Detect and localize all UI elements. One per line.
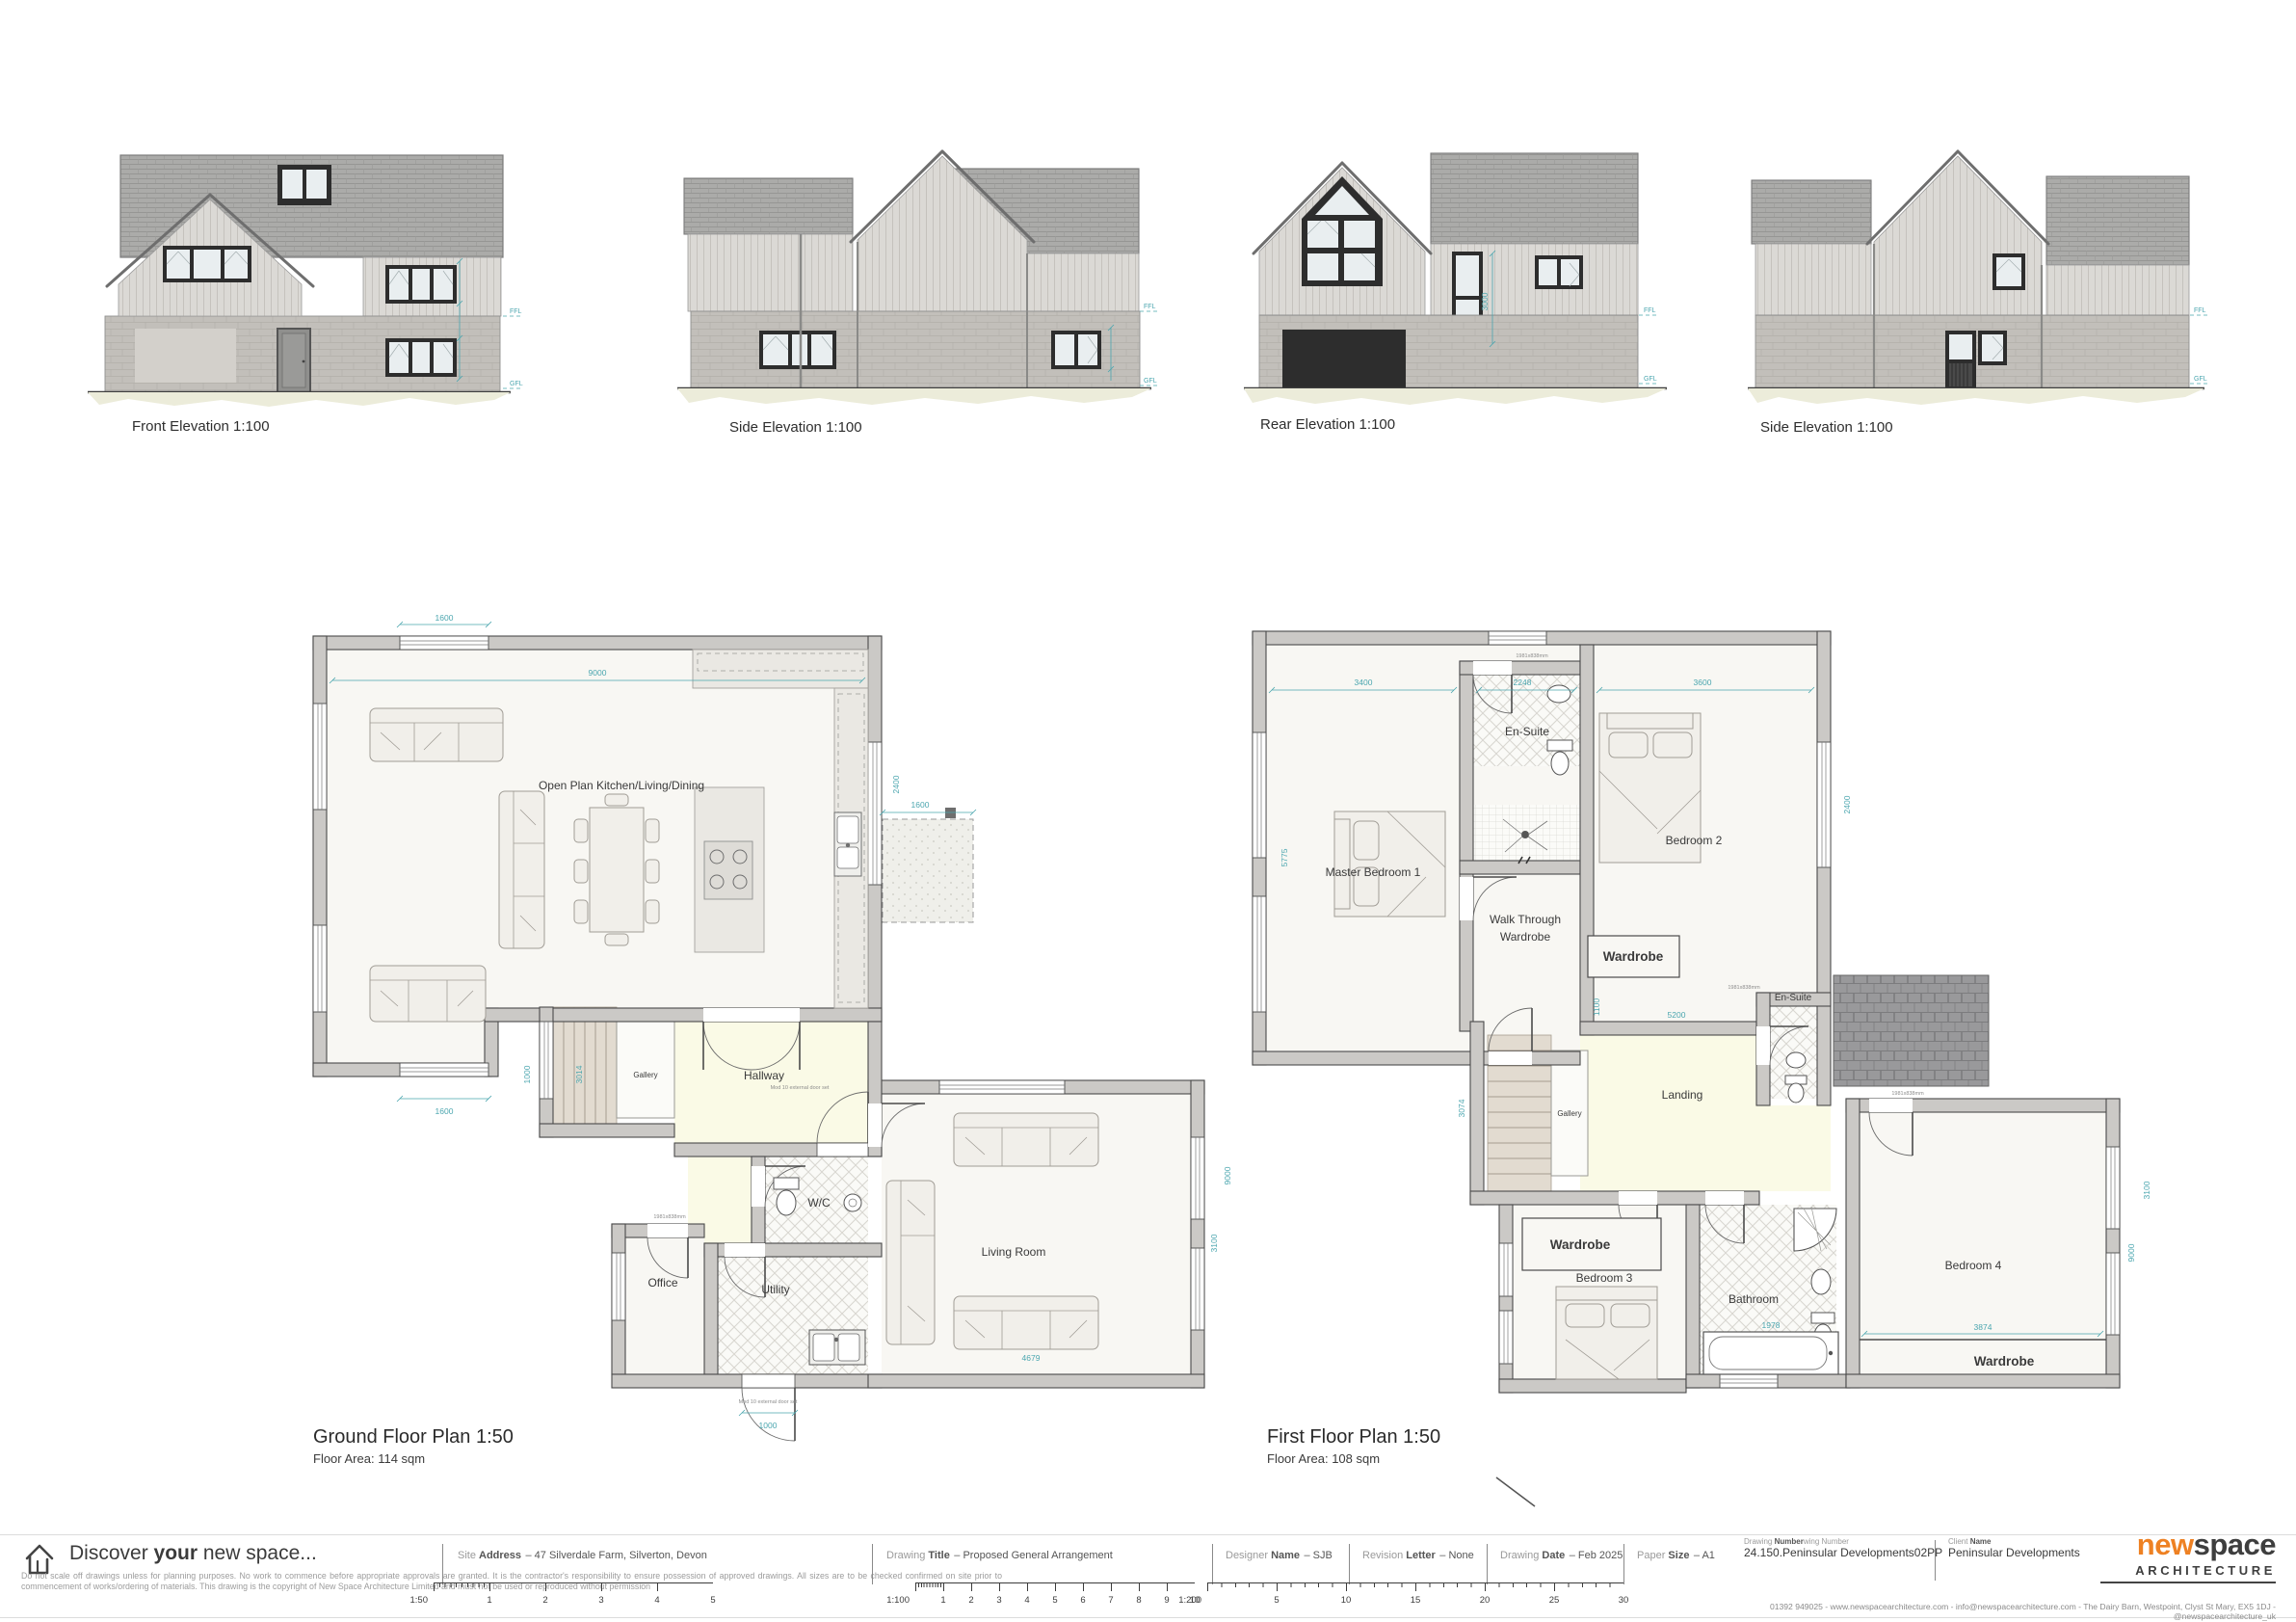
ground-window-right <box>1051 331 1101 369</box>
ground-line <box>677 388 1151 405</box>
field-value: – SJB <box>1305 1550 1333 1561</box>
upper-window-right <box>1535 255 1583 289</box>
gable-window <box>1993 253 2025 290</box>
first-floor-plan-drawing: Gallery <box>1233 578 2158 1446</box>
tag-utility-door: Mod 10 external door set <box>739 1399 798 1405</box>
field-label-bold: Number <box>1775 1537 1804 1546</box>
sofa <box>370 966 486 1022</box>
flat-roof-tiles <box>1834 975 1989 1086</box>
scale-tick: 25 <box>1549 1595 1560 1606</box>
gfl-label: GFL <box>1144 378 1157 385</box>
side-elevation-2-label: Side Elevation 1:100 <box>1760 419 1893 436</box>
patio <box>883 808 973 922</box>
upper-window-right <box>385 265 457 304</box>
left-roof <box>1752 180 1871 315</box>
left-roof <box>684 178 853 311</box>
scale-tick: 5 <box>1274 1595 1279 1606</box>
ffl-label: FFL <box>1644 307 1656 314</box>
scale-tick: 1 <box>487 1595 491 1606</box>
scale-tick: 3 <box>598 1595 603 1606</box>
field-designer: Designer Name – SJB <box>1226 1546 1333 1563</box>
ground-floor-area: Floor Area: 114 sqm <box>313 1451 425 1466</box>
scale-tick: 30 <box>1619 1595 1629 1606</box>
sofa <box>886 1181 935 1344</box>
utility-external-door <box>742 1374 795 1441</box>
left-cladding <box>1755 244 1871 315</box>
dim-landing: 5200 <box>1668 1010 1686 1020</box>
dim-width: 9000 <box>589 668 607 678</box>
field-label: Drawing <box>1500 1550 1542 1561</box>
field-label: Paper <box>1637 1550 1668 1561</box>
ground-floor-plan-drawing: Gallery <box>289 578 1233 1446</box>
ground-window-left <box>759 331 836 369</box>
scale-tick: 2 <box>968 1595 973 1606</box>
field-label-bold: Letter <box>1406 1550 1436 1561</box>
drawing-sheet: FFL GFL Front Elevation 1:100 <box>0 0 2296 1622</box>
sofa <box>954 1113 1098 1166</box>
scale-tick: 1 <box>940 1595 945 1606</box>
room-label-bath: Bathroom <box>1729 1292 1779 1306</box>
dim-bed4: 3874 <box>1974 1322 1993 1332</box>
tagline-bold: your <box>154 1542 198 1564</box>
room-label-bed4: Bedroom 4 <box>1945 1259 2002 1272</box>
field-drawing-number: Drawing Numberwing Number 24.150.Peninsu… <box>1744 1537 1942 1559</box>
tag-ensuite2-door: 1981x838mm <box>1728 985 1760 991</box>
scale-bar-1-50: 1:50 1 2 3 4 5 <box>434 1582 713 1591</box>
utility-sink <box>809 1330 865 1365</box>
bath <box>1703 1332 1838 1374</box>
field-value: – Feb 2025 <box>1570 1550 1623 1561</box>
scale-bar-1-200: 1:200 5 10 15 20 25 30 <box>1207 1582 1623 1591</box>
field-label-bold: Size <box>1668 1550 1689 1561</box>
dormer-window <box>277 165 331 205</box>
right-cladding <box>2046 265 2189 315</box>
scale-tick: 7 <box>1108 1595 1113 1606</box>
dim-living-height: 9000 <box>1223 1166 1232 1184</box>
gallery-label: Gallery <box>1557 1109 1581 1118</box>
side-elevation-1-drawing: FFL GFL <box>670 140 1161 448</box>
rear-dim-3000: 3000 <box>1480 292 1490 310</box>
contact-line: 01392 949025 - www.newspacearchitecture.… <box>1734 1602 2276 1621</box>
logo-architecture-text: ARCHITECTURE <box>2135 1563 2276 1578</box>
field-value: – A1 <box>1694 1550 1715 1561</box>
side-elevation-2-drawing: FFL GFL <box>1744 140 2216 448</box>
office-floor <box>625 1237 704 1374</box>
field-drawing-title: Drawing Title – Proposed General Arrange… <box>886 1546 1113 1563</box>
dim-stairs-width: 1000 <box>522 1065 532 1083</box>
scale-tick: 5 <box>710 1595 715 1606</box>
field-label: Drawing <box>1744 1537 1775 1546</box>
ground-line <box>1748 388 2204 405</box>
dim-win-bottom: 1600 <box>435 1106 454 1116</box>
newspace-logo: newspace ARCHITECTURE <box>2072 1528 2276 1580</box>
side-elevation-1-label: Side Elevation 1:100 <box>729 419 862 436</box>
tag-bed4-door: 1981x838mm <box>1891 1091 1924 1097</box>
pen-mark <box>1489 1470 1556 1518</box>
kitchen-island <box>695 787 764 952</box>
dim-bed2: 3600 <box>1694 678 1712 687</box>
tag-ensuite1-door: 1981x838mm <box>1516 653 1548 659</box>
dim-patio: 1600 <box>911 800 930 810</box>
sofa <box>370 708 503 761</box>
dim-wtw: 1100 <box>1592 998 1601 1017</box>
level-markers: FFL GFL <box>2190 307 2208 384</box>
door-side-window <box>1978 331 2007 365</box>
basin <box>1811 1269 1831 1294</box>
room-label-bed3: Bedroom 3 <box>1576 1271 1633 1285</box>
logo-new-text: new <box>2137 1528 2194 1561</box>
scale-tick: 15 <box>1411 1595 1421 1606</box>
field-divider <box>1623 1544 1624 1584</box>
room-label-wardrobe3: Wardrobe <box>1550 1237 1611 1252</box>
room-label-wardrobe2: Wardrobe <box>1603 949 1664 964</box>
field-label-suffix: wing Number <box>1804 1537 1849 1546</box>
dim-win-top: 1600 <box>435 613 454 623</box>
field-date: Drawing Date – Feb 2025 <box>1500 1546 1623 1563</box>
front-elevation-label: Front Elevation 1:100 <box>132 418 270 435</box>
first-floor-title: First Floor Plan 1:50 <box>1267 1426 1440 1449</box>
kitchen-sink <box>834 812 861 876</box>
tagline-suffix: new space... <box>198 1542 317 1564</box>
scale-tick: 8 <box>1136 1595 1141 1606</box>
field-revision: Revision Letter – None <box>1362 1546 1474 1563</box>
dim-living-bottom: 4679 <box>1022 1353 1041 1363</box>
sofa <box>954 1296 1098 1349</box>
ground-floor-title: Ground Floor Plan 1:50 <box>313 1426 514 1449</box>
room-label-ensuite2: En-Suite <box>1775 993 1812 1003</box>
tagline-pre: Discover <box>69 1542 154 1564</box>
dim-living-right: 3100 <box>1209 1234 1219 1252</box>
dim-open-right: 2400 <box>891 775 901 793</box>
dim-stairs: 3074 <box>1457 1099 1466 1117</box>
field-paper-size: Paper Size – A1 <box>1637 1546 1715 1563</box>
dim-bath: 1978 <box>1762 1320 1781 1330</box>
drawing-number-value: 24.150.Peninsular Developments02PP <box>1744 1546 1942 1559</box>
scale-fine-ticks <box>1207 1583 1623 1587</box>
field-label: Site <box>458 1550 479 1561</box>
field-value: – None <box>1439 1550 1473 1561</box>
scale-bar-1-100: 1:100 1 2 3 4 5 6 7 8 9 10 <box>915 1582 1195 1591</box>
field-value: – Proposed General Arrangement <box>954 1550 1113 1561</box>
dim-bed2-right: 2400 <box>1842 795 1852 813</box>
dim-left-height: 5775 <box>1280 848 1289 866</box>
scale-tick: 6 <box>1080 1595 1085 1606</box>
dim-right-inner: 3100 <box>2142 1181 2151 1199</box>
right-roof <box>2046 176 2189 315</box>
tag-office-door: 1981x838mm <box>653 1214 686 1220</box>
rear-elevation-drawing: 3000 FFL GFL <box>1238 140 1691 448</box>
level-markers: FFL GFL <box>1639 307 1658 384</box>
room-label-wc: W/C <box>807 1196 831 1210</box>
ensuite2-fixtures <box>1785 1052 1807 1103</box>
scale-label: 1:100 <box>886 1595 910 1606</box>
logo-space-text: space <box>2194 1528 2276 1561</box>
client-name-value: Peninsular Developments <box>1948 1546 2080 1559</box>
field-divider <box>1349 1544 1350 1584</box>
footer-top-rule <box>0 1534 2296 1535</box>
gfl-label: GFL <box>510 381 523 387</box>
dim-utility-door: 1000 <box>759 1421 778 1430</box>
field-label: Drawing <box>886 1550 928 1561</box>
ground-window-right <box>385 338 457 377</box>
patio-post <box>945 808 956 818</box>
brick-ground-storey <box>1259 315 1638 390</box>
tagline: Discover your new space... <box>69 1542 317 1565</box>
room-label-landing: Landing <box>1662 1088 1703 1102</box>
bed3 <box>1556 1287 1657 1379</box>
sofa <box>499 791 544 948</box>
room-label-bed2: Bedroom 2 <box>1666 834 1723 847</box>
scale-tick: 10 <box>1341 1595 1352 1606</box>
room-label-wtw-1: Walk Through <box>1490 913 1561 926</box>
front-elevation-drawing: FFL GFL <box>82 140 525 448</box>
gfl-label: GFL <box>2194 376 2207 383</box>
landing-floor <box>1580 1035 1756 1191</box>
field-divider <box>442 1544 443 1584</box>
field-label-bold: Name <box>1271 1550 1300 1561</box>
dim-stairs: 3014 <box>574 1065 584 1083</box>
scale-fine-ticks <box>915 1583 943 1587</box>
field-label-bold: Title <box>928 1550 949 1561</box>
field-divider <box>1212 1544 1213 1584</box>
scale-tick: 4 <box>654 1595 659 1606</box>
render-patch <box>135 329 236 383</box>
scale-tick: 4 <box>1024 1595 1029 1606</box>
gable-window <box>163 246 251 282</box>
field-label-bold: Name <box>1970 1537 1992 1546</box>
field-label-bold: Address <box>479 1550 521 1561</box>
room-label-open-plan: Open Plan Kitchen/Living/Dining <box>539 779 704 792</box>
room-label-wtw-2: Wardrobe <box>1500 930 1551 944</box>
field-label-bold: Date <box>1542 1550 1565 1561</box>
scale-tick: 2 <box>542 1595 547 1606</box>
dim-right-height: 9000 <box>2126 1243 2136 1262</box>
room-label-master: Master Bedroom 1 <box>1326 865 1421 879</box>
left-cladding <box>688 234 853 311</box>
scale-label: 1:50 <box>410 1595 429 1606</box>
front-door <box>277 329 310 392</box>
first-floor-area: Floor Area: 108 sqm <box>1267 1451 1380 1466</box>
room-label-living: Living Room <box>982 1245 1046 1259</box>
field-client: Client Name Peninsular Developments <box>1948 1537 2080 1559</box>
ground-line <box>88 392 511 407</box>
staircase: Gallery <box>553 1007 674 1124</box>
scale-tick: 3 <box>996 1595 1001 1606</box>
field-value: – 47 Silverdale Farm, Silverton, Devon <box>526 1550 707 1561</box>
room-label-utility: Utility <box>761 1283 789 1296</box>
ffl-label: FFL <box>510 308 522 315</box>
dim-master: 3400 <box>1355 678 1373 687</box>
tag-front-door: Mod 10 external door set <box>771 1085 830 1091</box>
room-label-office: Office <box>647 1276 677 1290</box>
gfl-label: GFL <box>1644 376 1657 383</box>
logo-underline <box>2100 1582 2276 1583</box>
scale-fine-ticks <box>434 1583 489 1587</box>
landing-corridor-floor <box>1756 1105 1831 1191</box>
field-label: Revision <box>1362 1550 1406 1561</box>
room-label-hallway: Hallway <box>744 1069 784 1082</box>
scale-tick: 9 <box>1164 1595 1169 1606</box>
field-site-address: Site Address – 47 Silverdale Farm, Silve… <box>458 1546 707 1563</box>
field-label: Designer <box>1226 1550 1271 1561</box>
ground-line <box>1244 388 1667 405</box>
ffl-label: FFL <box>2194 307 2206 314</box>
ffl-label: FFL <box>1144 304 1156 310</box>
room-label-wardrobe4: Wardrobe <box>1974 1354 2035 1369</box>
dim-ensuite: 2248 <box>1514 678 1532 687</box>
gallery-label: Gallery <box>633 1071 657 1079</box>
field-divider <box>872 1544 873 1584</box>
field-label: Client <box>1948 1537 1970 1546</box>
scale-label: 1:200 <box>1178 1595 1201 1606</box>
master-bed <box>1334 811 1445 917</box>
rear-elevation-label: Rear Elevation 1:100 <box>1260 416 1395 433</box>
room-label-ensuite1: En-Suite <box>1505 725 1549 738</box>
scale-tick: 20 <box>1480 1595 1491 1606</box>
bed4-floor <box>1860 1112 2106 1374</box>
side-door <box>1945 331 1976 390</box>
field-divider <box>1487 1544 1488 1584</box>
scale-tick: 5 <box>1052 1595 1057 1606</box>
centre-gable <box>1867 151 2048 315</box>
